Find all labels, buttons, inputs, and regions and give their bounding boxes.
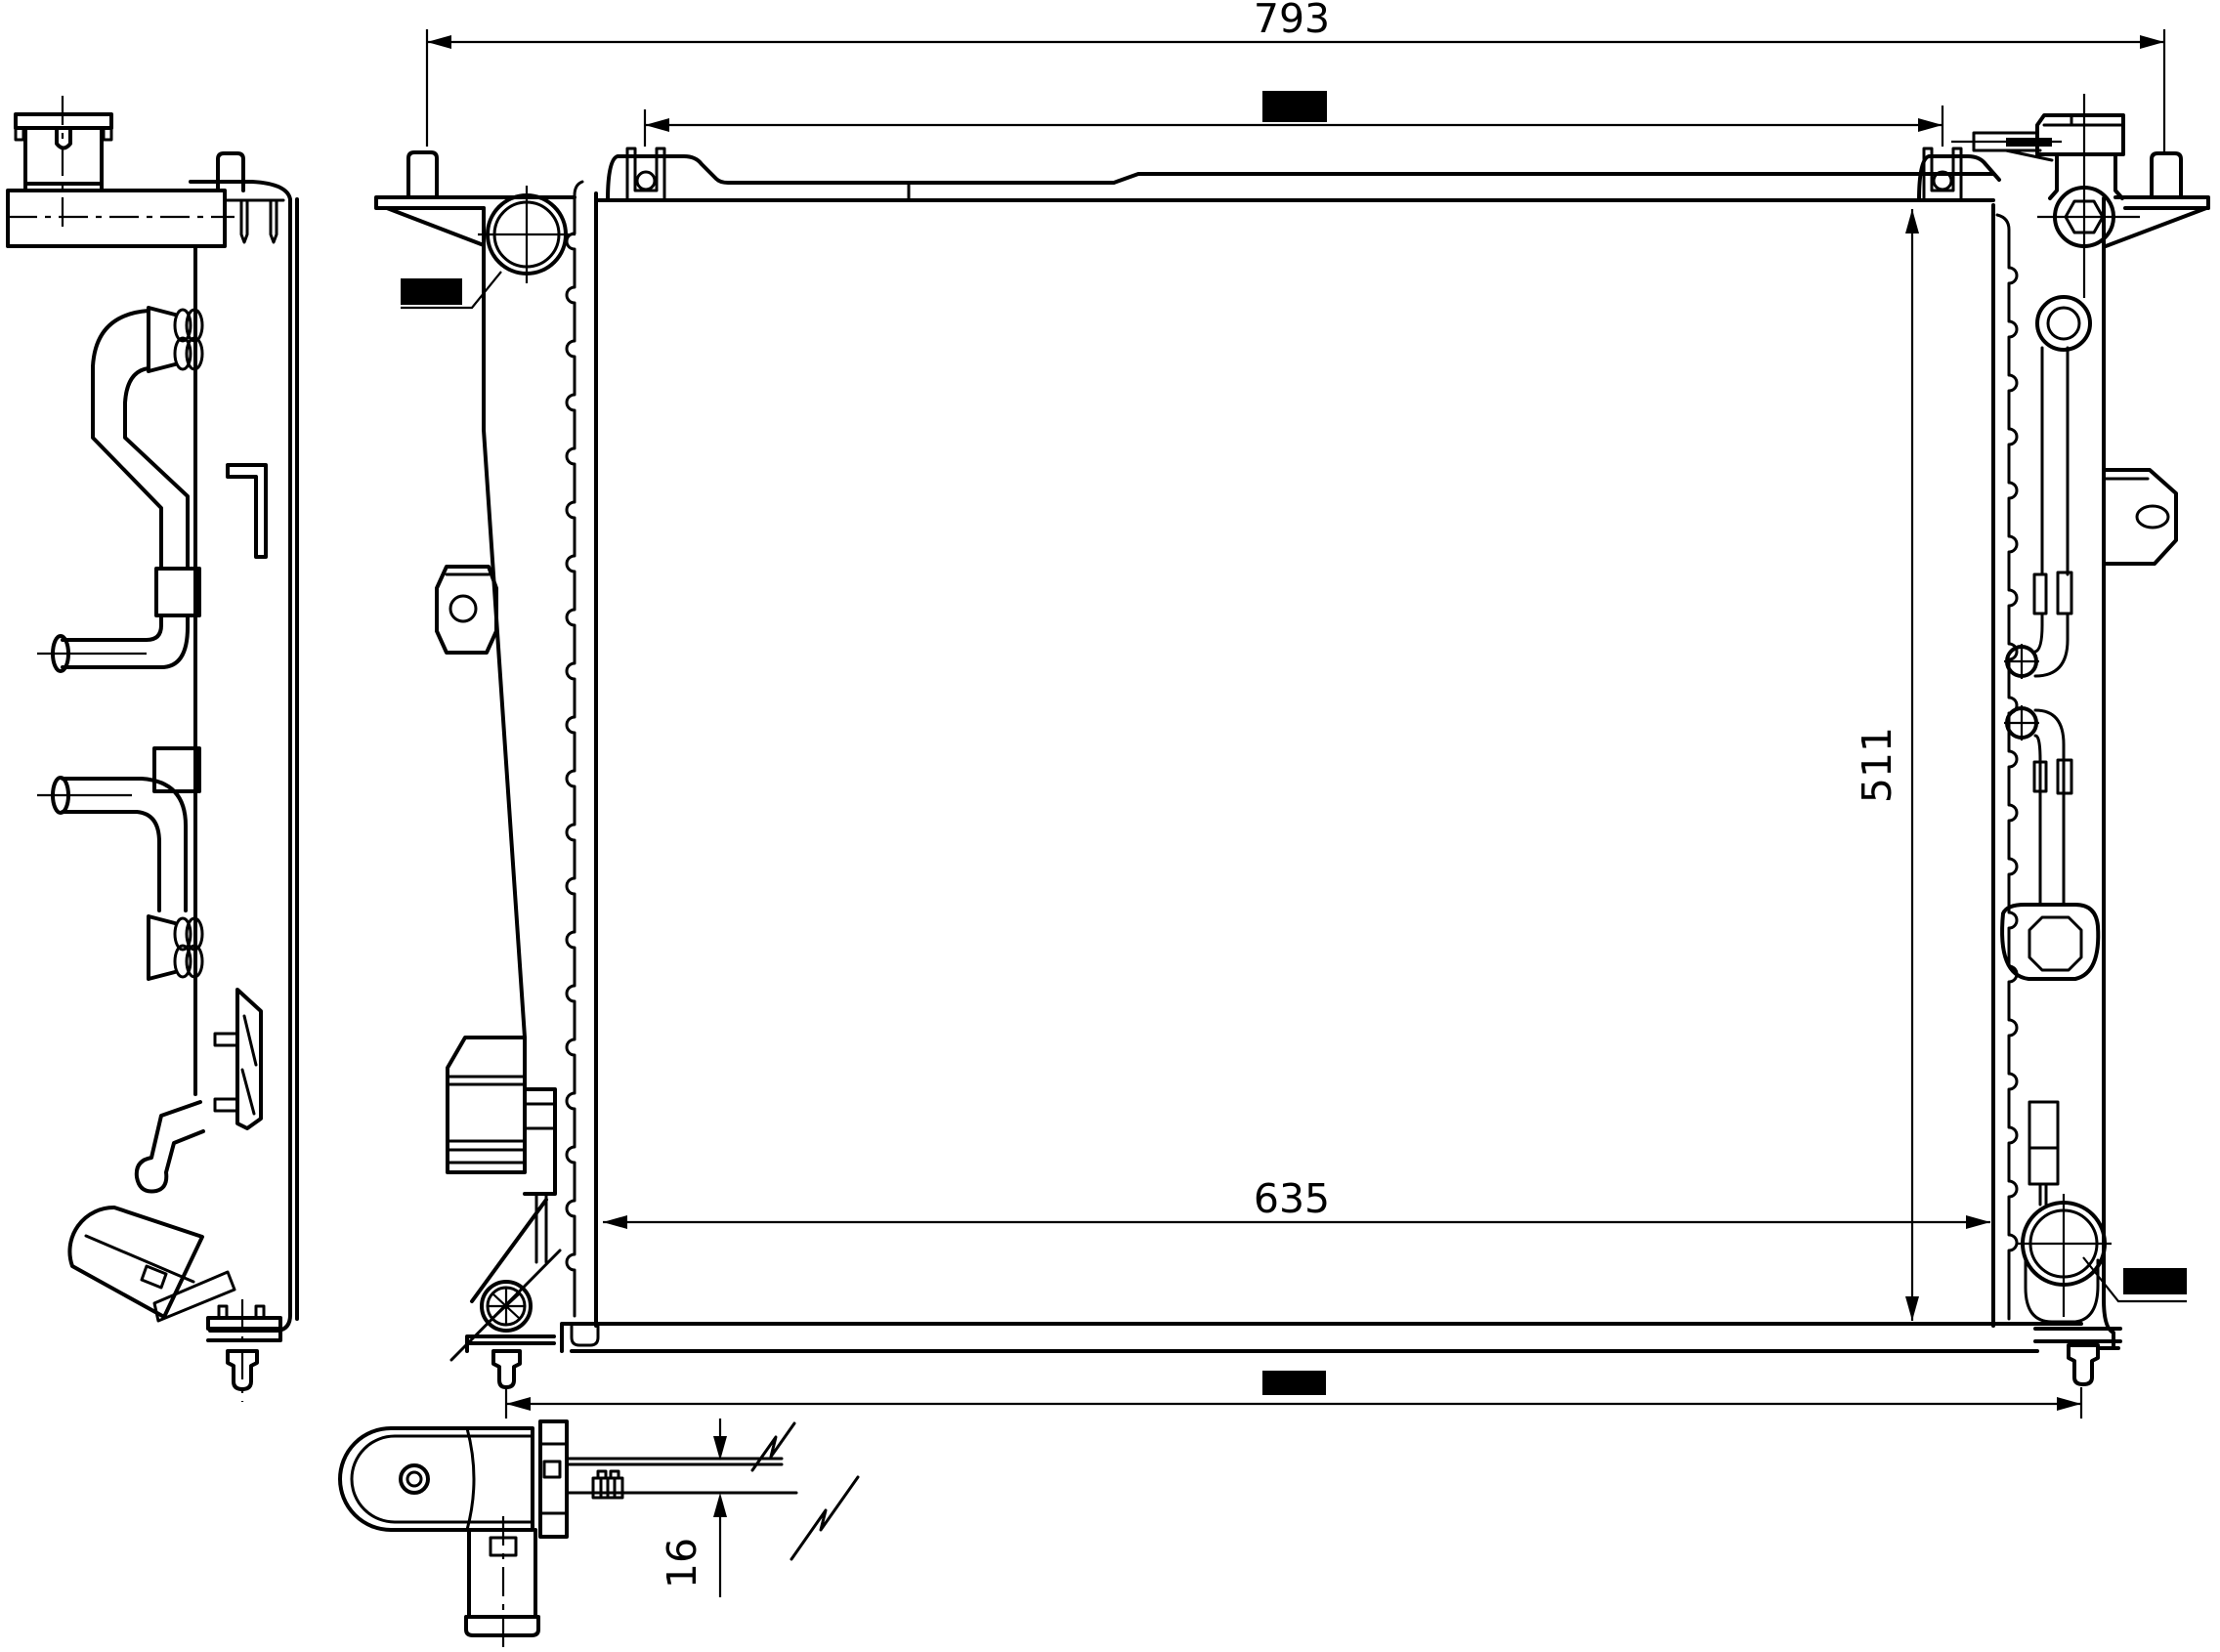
fitting-flange xyxy=(540,1421,567,1537)
oil-pipe-1-inner xyxy=(125,368,188,569)
side-view xyxy=(8,96,297,1402)
filler-neck-front xyxy=(478,186,576,283)
slotted-bracket xyxy=(215,990,261,1128)
dim-bracket-thickness-label: 16 xyxy=(659,1538,705,1588)
retaining-clip xyxy=(137,1102,203,1191)
drain-peg-right xyxy=(2069,1345,2098,1384)
dim-top-width-label: 793 xyxy=(1254,0,1330,42)
dimension-793: 793 xyxy=(427,0,2164,151)
detail-view-hose-fitting: 16 xyxy=(340,1419,858,1652)
dim-core-height-label: 511 xyxy=(1854,727,1900,803)
redacted-callout-box-right xyxy=(2123,1268,2187,1294)
dim-core-width-label: 635 xyxy=(1254,1175,1330,1222)
outlet-opening xyxy=(2016,1194,2112,1322)
pipe-stub-b-bottom xyxy=(63,812,159,911)
dimension-511: 511 xyxy=(1854,209,1919,1321)
pipe-clamp-1 xyxy=(156,569,199,615)
dimension-top-inner-redacted xyxy=(645,91,1942,147)
break-line-lower xyxy=(791,1477,858,1559)
redacted-callout-box-left xyxy=(401,278,462,305)
fitting-pipe-down xyxy=(466,1516,538,1652)
redacted-dimension-box-bottom xyxy=(1262,1371,1326,1395)
radiator-technical-drawing: 793 511 635 xyxy=(0,0,2220,1652)
panel-edge-lines xyxy=(567,1423,858,1559)
pipe-stub-b-top xyxy=(63,779,186,911)
dimension-bottom-redacted xyxy=(506,1371,2081,1419)
top-tank-side xyxy=(8,153,283,246)
drain-peg-left xyxy=(493,1351,520,1387)
drawing-sheet: 793 511 635 xyxy=(0,0,2220,1652)
l-bracket xyxy=(228,465,266,557)
drain-cock xyxy=(451,1200,560,1387)
top-tank-front xyxy=(596,156,1993,200)
right-tank-edge xyxy=(2099,198,2118,1348)
side-wall-outer xyxy=(191,182,290,1331)
callout-filler-neck-redacted xyxy=(401,272,501,308)
outlet-pipe-side xyxy=(69,1207,235,1321)
left-tank-edge xyxy=(484,208,525,1038)
dimension-16: 16 xyxy=(659,1419,727,1597)
core-serration-right xyxy=(1997,215,2017,1319)
mount-peg-top-right xyxy=(2152,153,2181,197)
left-tank-tab xyxy=(437,567,496,653)
redacted-dimension-box-top xyxy=(1262,91,1327,122)
pipe-stub-a-top xyxy=(63,615,161,640)
bottom-tank-front xyxy=(562,1324,2120,1384)
radiator-cap-front xyxy=(1951,94,2140,298)
right-tank-tab xyxy=(2106,470,2176,564)
core-serration-left xyxy=(567,182,582,1316)
mount-peg-top-left xyxy=(408,152,437,197)
connector-block xyxy=(448,1038,555,1262)
bottom-mount-side xyxy=(208,1299,280,1402)
dimension-635: 635 xyxy=(603,1175,1990,1229)
fitting-body-inner xyxy=(352,1436,533,1522)
